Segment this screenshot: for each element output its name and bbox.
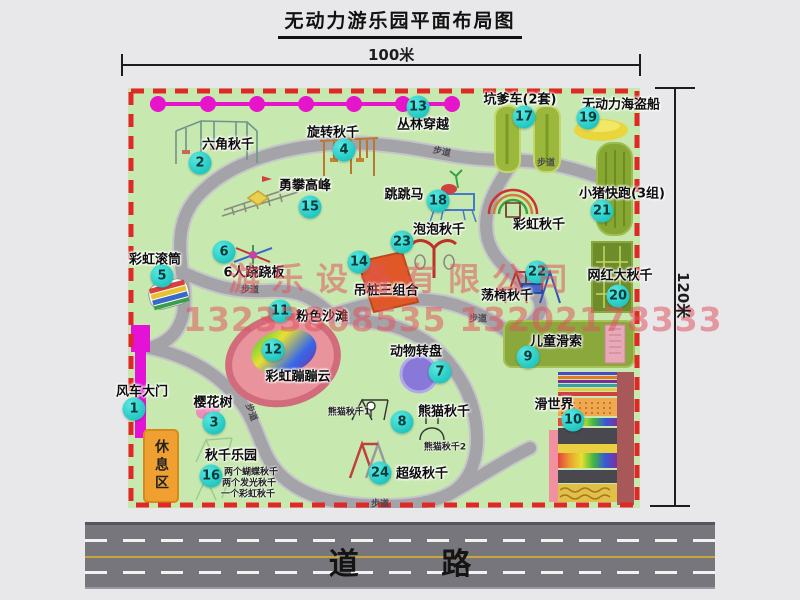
dim-width-tick-left (121, 54, 123, 76)
cherry-tree-icon (196, 402, 220, 428)
super-swing-icon (350, 444, 390, 478)
watermark-company: 游乐设备有限公司 (228, 254, 580, 300)
page-title-text: 无动力游乐园平面布局图 (278, 6, 521, 39)
jungle-crossing-cable (150, 96, 460, 112)
dim-width-tick-right (639, 54, 641, 76)
dim-height-tick-bottom (650, 505, 690, 507)
pig-run-track (597, 143, 632, 235)
watermark-phone: 13233808535 13202178333 (183, 300, 723, 339)
dim-height-tick-top (655, 87, 695, 89)
swing-park-icons (196, 438, 240, 500)
park-layout-poster: 无动力游乐园平面布局图 100米 120米 (0, 0, 800, 600)
pirate-ship-icon (574, 119, 628, 141)
road-label: 道 路 (85, 539, 715, 583)
windmill-gate-shape (131, 325, 150, 438)
dim-width-label: 100米 (368, 44, 414, 65)
road: 道 路 (85, 522, 715, 589)
rest-area-label: 休息区 (151, 439, 171, 493)
animal-turntable-circle (401, 356, 437, 392)
slide-world-stripes (549, 372, 634, 505)
climbing-peak-icon (222, 176, 298, 216)
jumping-horse-icon (430, 170, 476, 222)
dim-height-label: 120米 (673, 272, 694, 318)
panda-swing-icons (352, 400, 444, 440)
page-title: 无动力游乐园平面布局图 (0, 6, 800, 39)
